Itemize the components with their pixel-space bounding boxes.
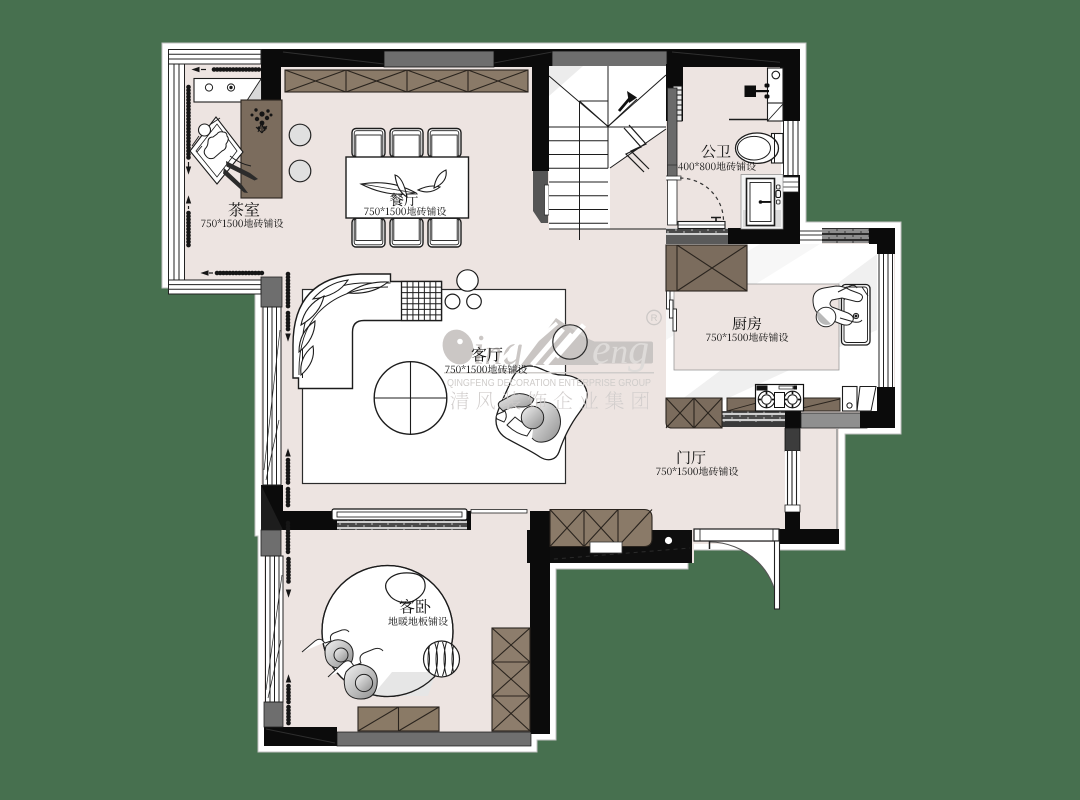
svg-text:R: R [651, 313, 658, 324]
svg-text:eng: eng [592, 327, 649, 373]
svg-text:QINGFENG DECORATION ENTERPRI: QINGFENG DECORATION ENTERPRISE GROUP [447, 378, 651, 389]
